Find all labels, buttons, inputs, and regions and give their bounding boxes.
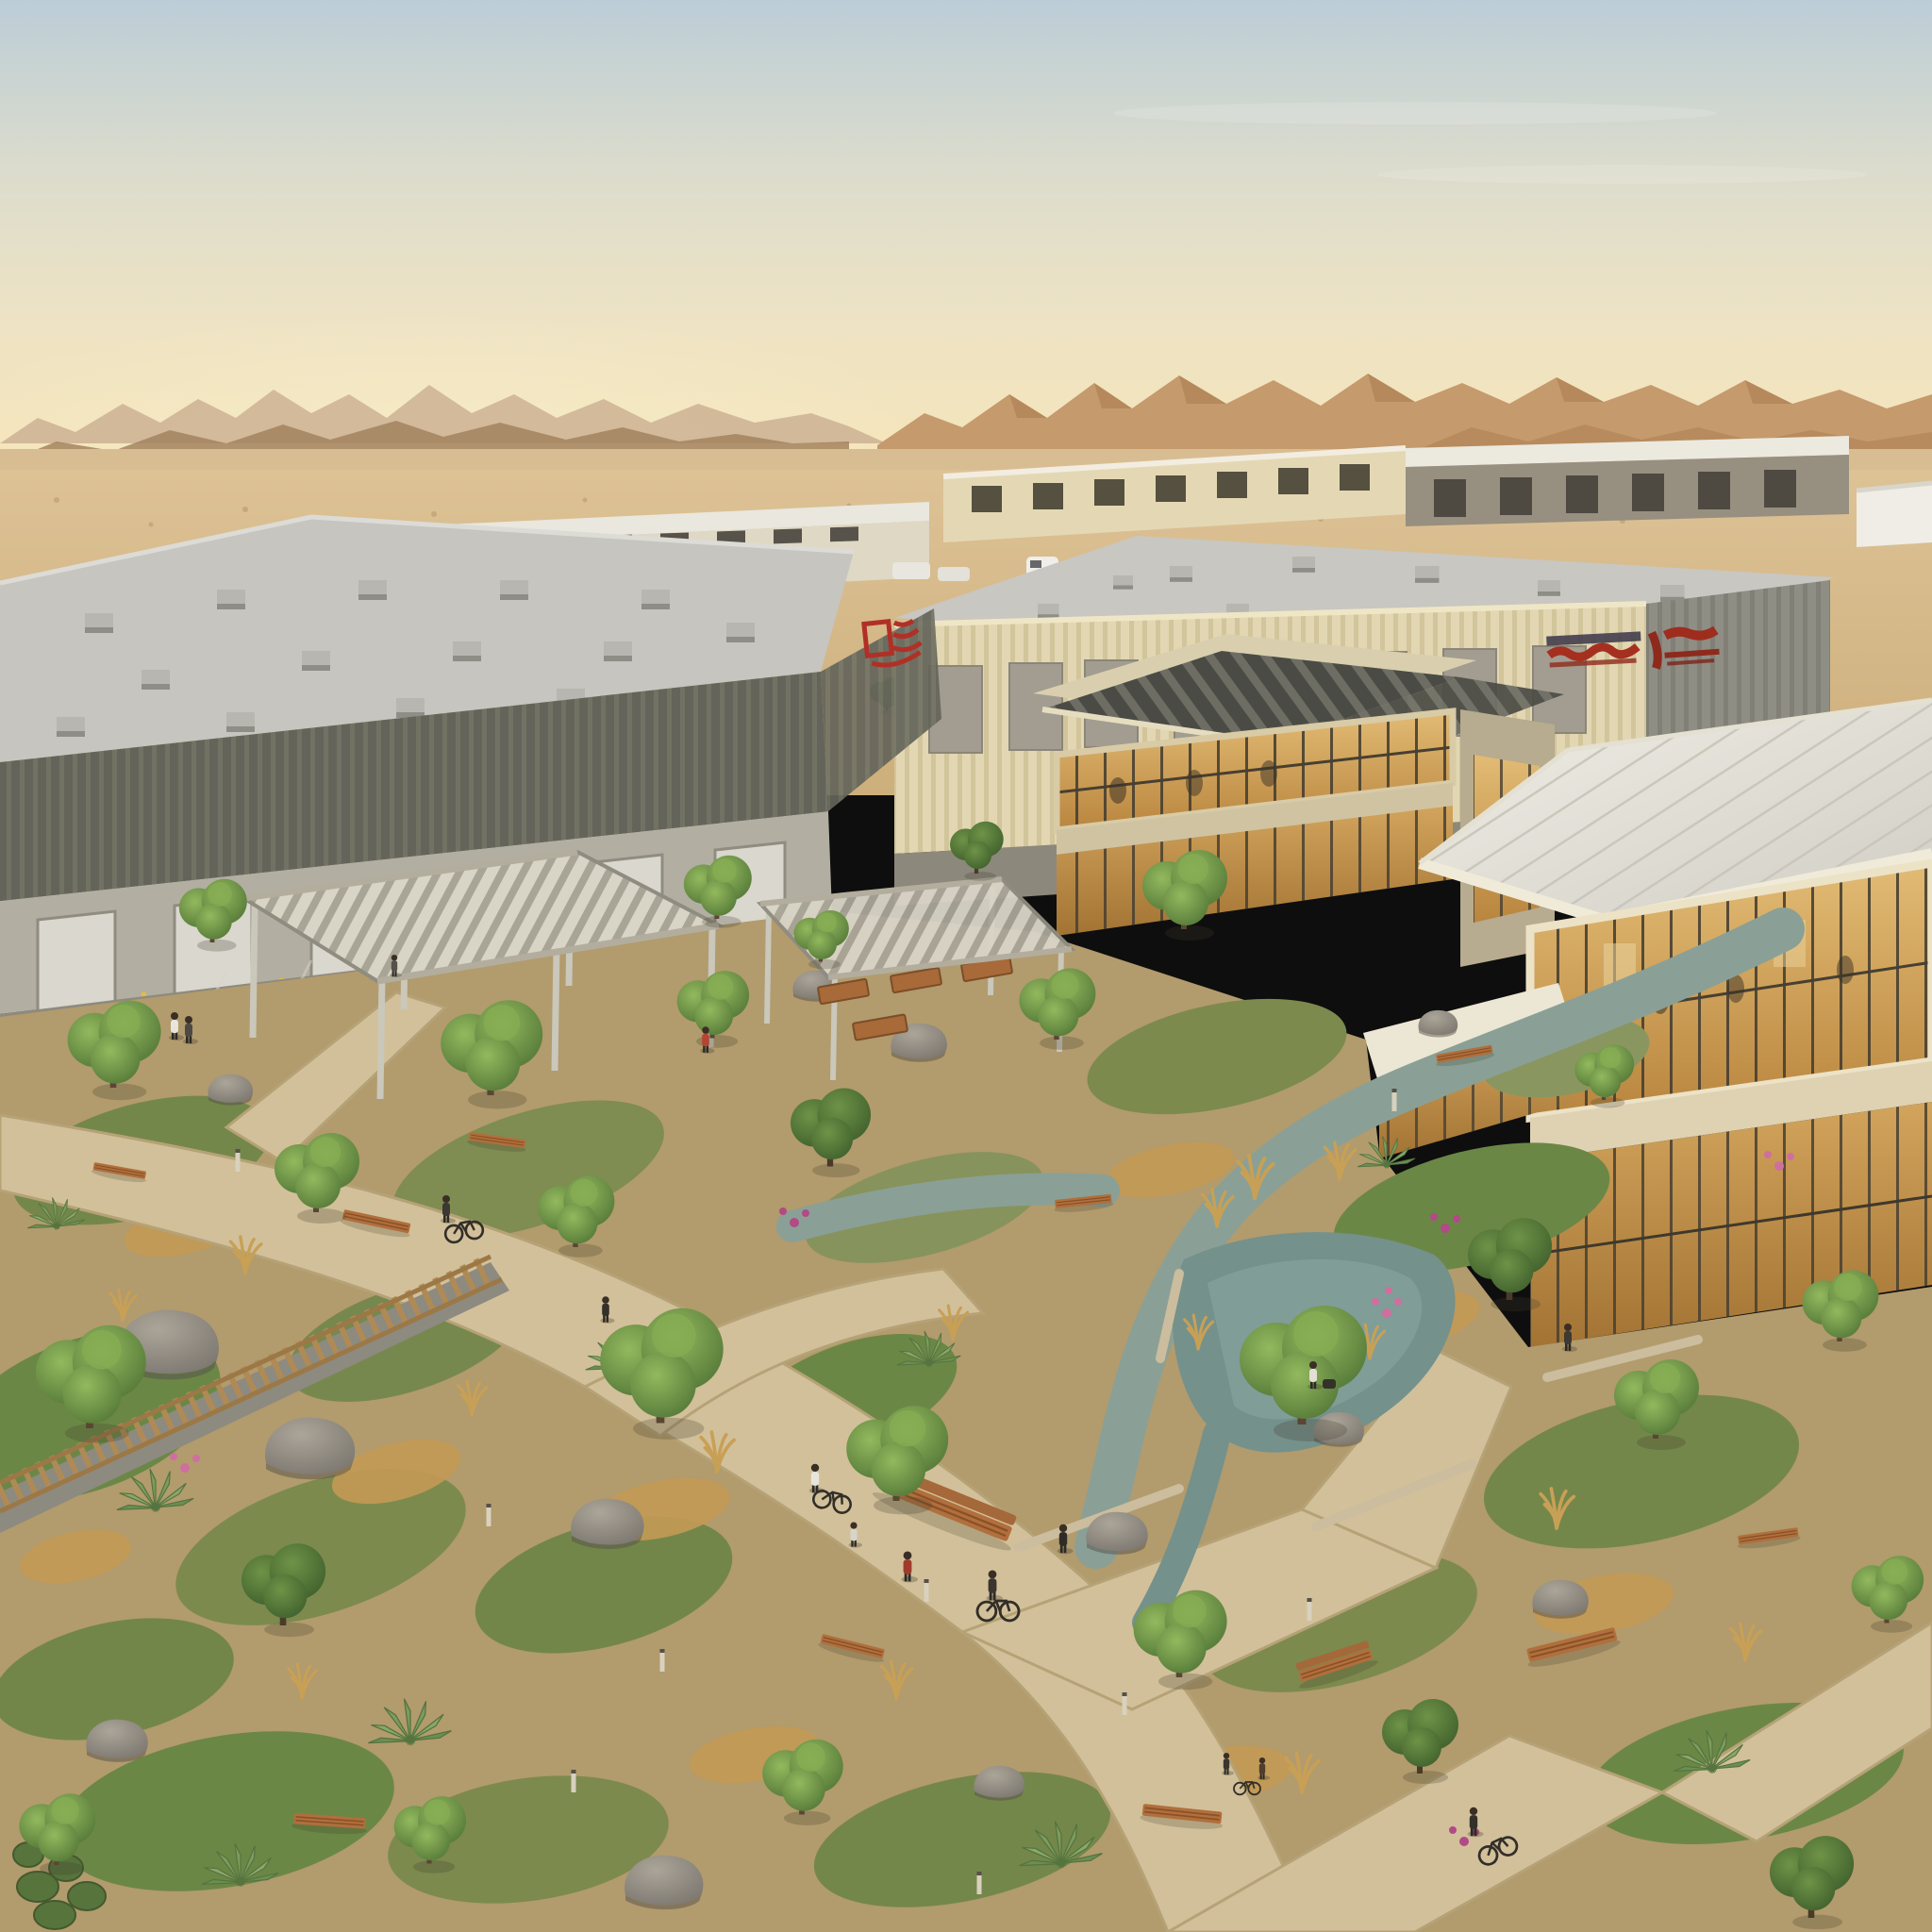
cloud-wisp [1377,165,1868,184]
scene-rendering: \ [0,0,1932,1932]
rendering-stage: \ [0,0,1932,1932]
office-center [1033,634,1564,967]
interior-silhouette [1837,956,1854,984]
interior-silhouette [1260,760,1277,787]
interior-silhouette [1186,770,1203,796]
park [0,822,1932,1932]
cloud-wisp [1113,102,1717,125]
interior-silhouette [1109,777,1126,804]
background-warehouse-east [1406,436,1849,526]
small-white-shed [1857,483,1932,547]
stroller [1323,1379,1336,1389]
